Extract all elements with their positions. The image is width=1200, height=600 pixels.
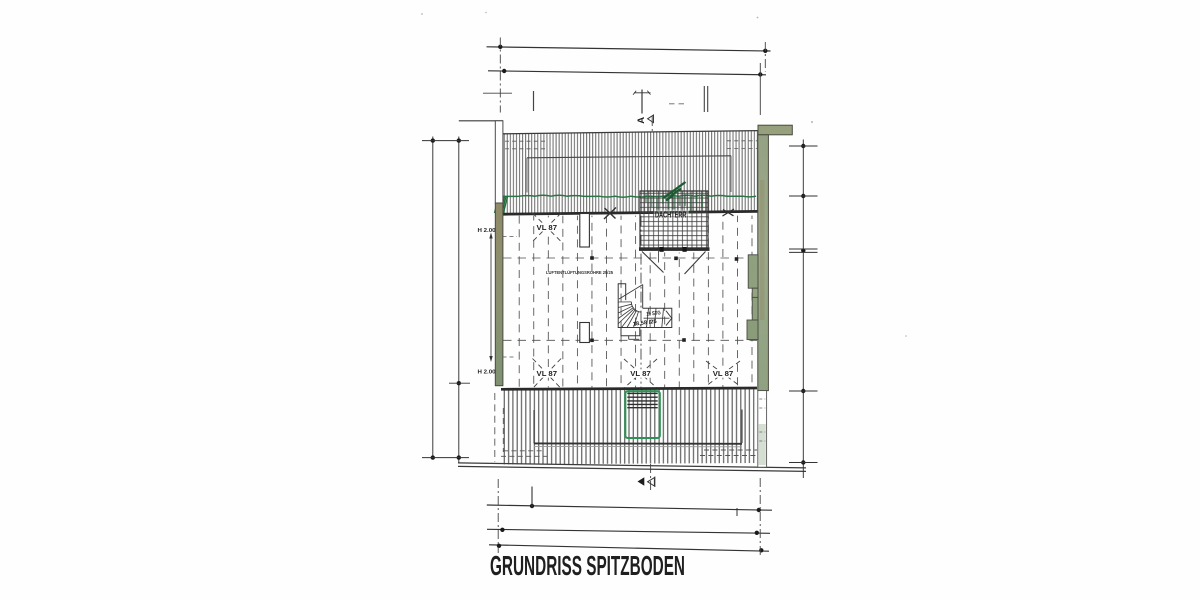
svg-text:H 2.00: H 2.00 [478,228,496,234]
svg-text:VL 87: VL 87 [713,371,734,378]
svg-text:VL 87: VL 87 [630,371,651,378]
svg-text:GRUNDRISS SPITZBODEN: GRUNDRISS SPITZBODEN [490,550,685,581]
svg-text:A: A [636,117,647,124]
svg-text:VL 87: VL 87 [537,225,558,232]
svg-text:H 2.00: H 2.00 [478,370,496,376]
svg-text:VL 87: VL 87 [537,371,558,378]
svg-text:DACHTERR.: DACHTERR. [655,211,688,220]
svg-text:LUFTENTLÜFTUNGSROHRE 25/25: LUFTENTLÜFTUNGSROHRE 25/25 [546,270,614,275]
